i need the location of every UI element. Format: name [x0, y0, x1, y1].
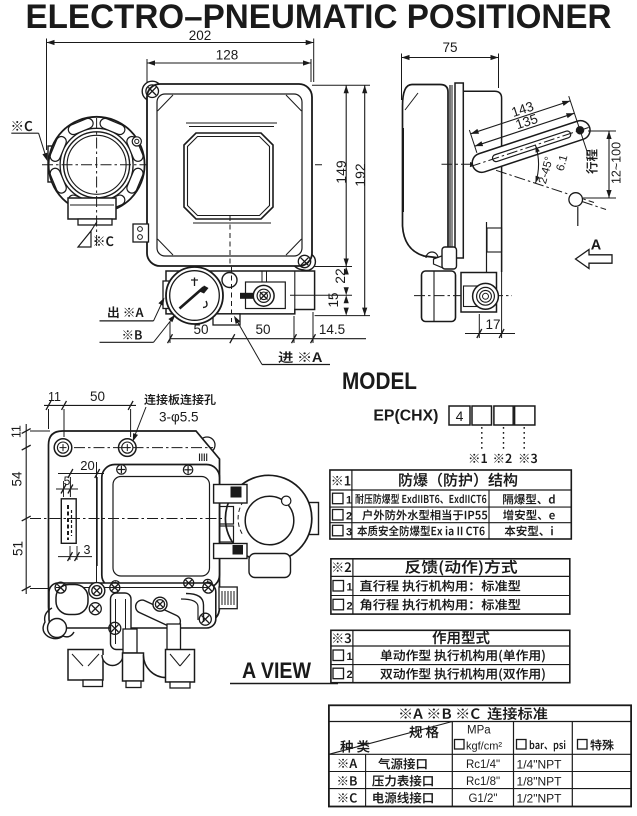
svg-text:22: 22 [332, 268, 348, 284]
svg-text:12~100: 12~100 [610, 142, 624, 184]
svg-text:3: 3 [346, 527, 352, 539]
svg-text:MODEL: MODEL [342, 368, 417, 395]
svg-text:1/2"NPT: 1/2"NPT [517, 792, 563, 806]
svg-text:50: 50 [90, 389, 105, 404]
svg-text:17: 17 [485, 317, 500, 332]
svg-text:128: 128 [216, 48, 239, 63]
svg-text:Rc1/4": Rc1/4" [466, 759, 500, 771]
svg-text:Rc1/8": Rc1/8" [466, 776, 500, 788]
svg-text:1/4"NPT: 1/4"NPT [517, 758, 563, 772]
svg-text:G1/2": G1/2" [468, 793, 497, 805]
svg-text:3-φ5.5: 3-φ5.5 [159, 410, 199, 425]
svg-text:149: 149 [333, 160, 349, 184]
svg-text:4: 4 [456, 408, 464, 424]
svg-text:2: 2 [346, 601, 352, 613]
svg-text:MPa: MPa [467, 725, 491, 737]
svg-text:1/8"NPT: 1/8"NPT [517, 775, 563, 789]
svg-text:15: 15 [326, 292, 341, 307]
svg-text:1: 1 [346, 582, 352, 594]
svg-text:kgf/cm²: kgf/cm² [466, 741, 502, 753]
svg-text:A: A [591, 238, 602, 254]
svg-text:5: 5 [64, 474, 71, 488]
svg-text:20: 20 [80, 458, 94, 473]
svg-text:51: 51 [11, 541, 26, 556]
svg-text:50: 50 [255, 322, 270, 337]
svg-text:11: 11 [10, 425, 24, 438]
svg-text:202: 202 [189, 28, 212, 43]
svg-text:50: 50 [193, 322, 208, 337]
svg-text:2: 2 [346, 669, 352, 681]
svg-text:2: 2 [346, 511, 352, 523]
svg-text:54: 54 [10, 471, 25, 487]
svg-text:192: 192 [352, 163, 368, 187]
svg-text:ELECTRO–PNEUMATIC POSITIONER: ELECTRO–PNEUMATIC POSITIONER [26, 0, 612, 36]
svg-text:75: 75 [442, 40, 457, 55]
svg-text:3: 3 [84, 543, 91, 557]
svg-text:1: 1 [346, 495, 352, 507]
svg-text:EP(CHX): EP(CHX) [373, 408, 438, 425]
svg-text:14.5: 14.5 [319, 322, 345, 337]
svg-text:11: 11 [48, 390, 61, 404]
svg-text:A VIEW: A VIEW [242, 658, 311, 683]
svg-text:1: 1 [346, 651, 352, 663]
